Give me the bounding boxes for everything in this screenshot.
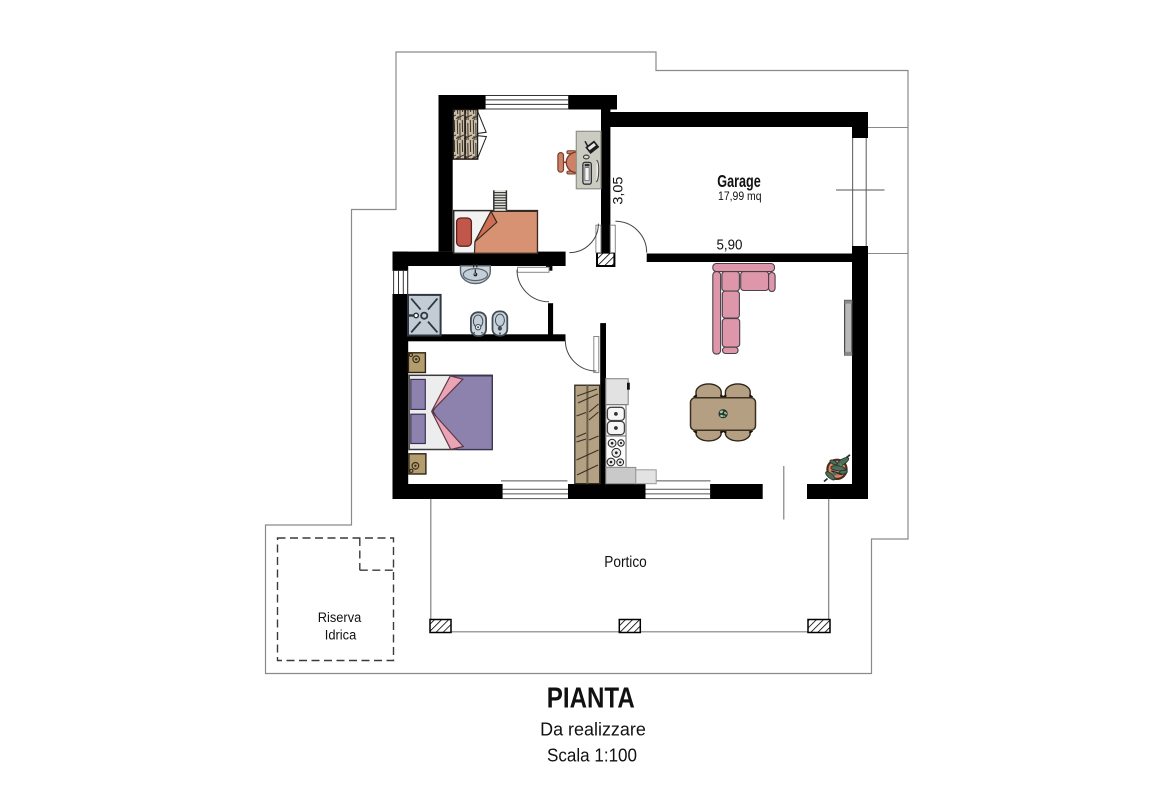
svg-text:3,05: 3,05	[609, 176, 625, 204]
svg-text:5,90: 5,90	[717, 238, 743, 254]
svg-text:Idrica: Idrica	[325, 628, 357, 643]
svg-text:Riserva: Riserva	[318, 610, 362, 625]
svg-text:Portico: Portico	[604, 554, 647, 571]
svg-text:Garage: Garage	[717, 171, 761, 191]
svg-text:17,99 mq: 17,99 mq	[718, 189, 762, 203]
svg-text:PIANTA: PIANTA	[547, 683, 635, 715]
svg-text:Scala 1:100: Scala 1:100	[547, 746, 637, 766]
svg-text:Da realizzare: Da realizzare	[540, 720, 646, 740]
